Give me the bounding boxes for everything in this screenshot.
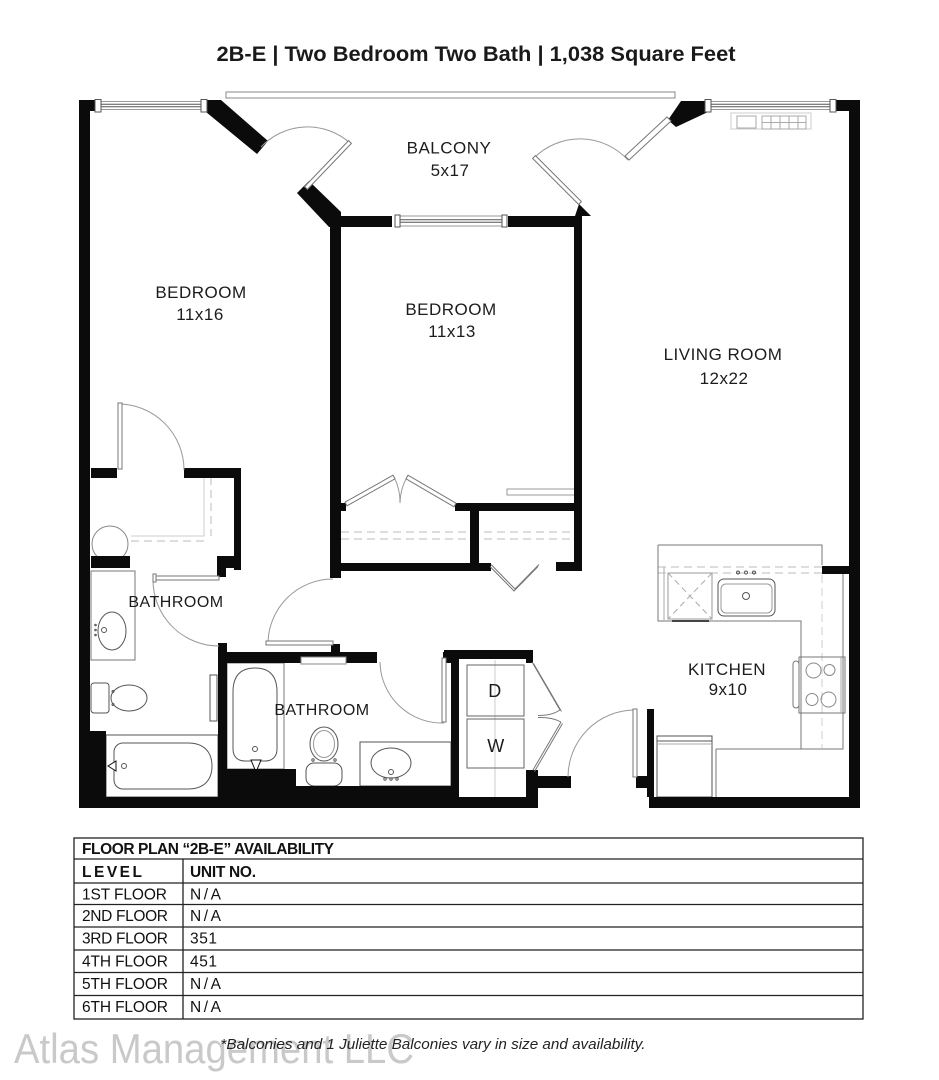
svg-text:351: 351 — [190, 931, 217, 948]
svg-text:N/A: N/A — [190, 908, 222, 925]
svg-text:LIVING ROOM: LIVING ROOM — [664, 345, 783, 364]
svg-text:2ND FLOOR: 2ND FLOOR — [82, 908, 168, 925]
svg-text:2B-E | Two Bedroom Two Bath |: 2B-E | Two Bedroom Two Bath | 1,038 Squa… — [217, 43, 736, 66]
svg-text:BALCONY: BALCONY — [407, 139, 492, 158]
svg-text:N/A: N/A — [190, 999, 222, 1016]
svg-text:6TH FLOOR: 6TH FLOOR — [82, 999, 168, 1016]
svg-text:5TH FLOOR: 5TH FLOOR — [82, 976, 168, 993]
svg-text:3RD FLOOR: 3RD FLOOR — [82, 931, 168, 948]
svg-text:UNIT NO.: UNIT NO. — [190, 864, 256, 881]
svg-text:W: W — [487, 736, 505, 756]
svg-text:BATHROOM: BATHROOM — [128, 594, 223, 611]
svg-text:D: D — [488, 681, 502, 701]
svg-text:N/A: N/A — [190, 976, 222, 993]
svg-text:9x10: 9x10 — [709, 680, 748, 699]
svg-text:12x22: 12x22 — [700, 369, 749, 388]
svg-text:1ST FLOOR: 1ST FLOOR — [82, 887, 167, 904]
svg-text:5x17: 5x17 — [431, 161, 470, 180]
svg-text:KITCHEN: KITCHEN — [688, 660, 766, 679]
svg-text:451: 451 — [190, 954, 217, 971]
svg-text:*Balconies and 1 Juliette Balc: *Balconies and 1 Juliette Balconies vary… — [221, 1036, 646, 1053]
svg-text:FLOOR PLAN “2B-E” AVAILABILITY: FLOOR PLAN “2B-E” AVAILABILITY — [82, 841, 335, 858]
svg-text:N/A: N/A — [190, 887, 222, 904]
svg-text:BEDROOM: BEDROOM — [405, 300, 496, 319]
svg-text:11x13: 11x13 — [428, 322, 476, 341]
svg-text:11x16: 11x16 — [176, 305, 224, 324]
svg-text:4TH FLOOR: 4TH FLOOR — [82, 954, 168, 971]
svg-text:BEDROOM: BEDROOM — [155, 283, 246, 302]
svg-text:LEVEL: LEVEL — [82, 864, 142, 881]
svg-text:BATHROOM: BATHROOM — [274, 702, 369, 719]
